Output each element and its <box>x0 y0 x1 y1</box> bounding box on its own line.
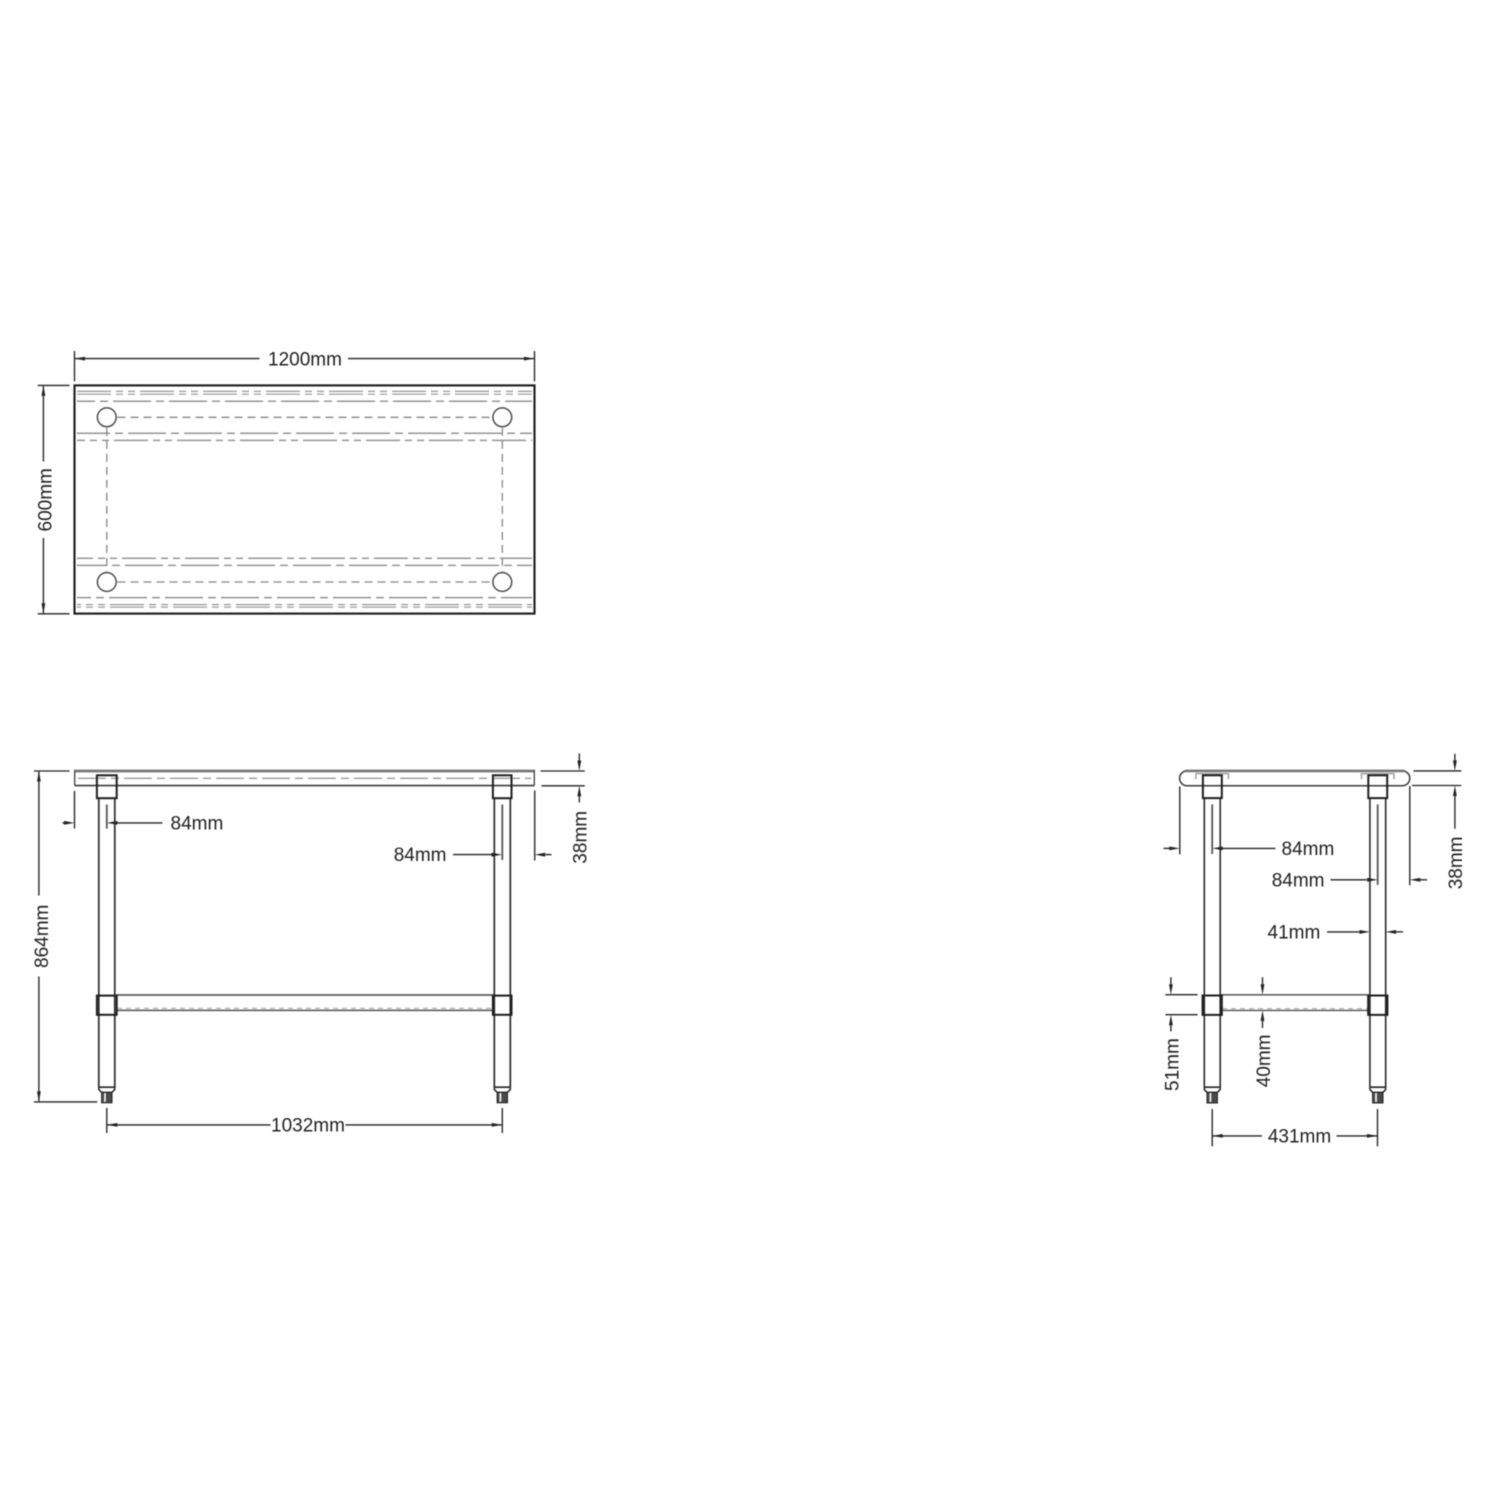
svg-text:1200mm: 1200mm <box>268 349 342 370</box>
svg-text:84mm: 84mm <box>394 845 447 866</box>
svg-text:84mm: 84mm <box>171 813 224 834</box>
svg-text:1032mm: 1032mm <box>271 1116 345 1137</box>
svg-text:600mm: 600mm <box>36 468 57 531</box>
svg-text:38mm: 38mm <box>570 811 591 864</box>
svg-text:40mm: 40mm <box>1254 1035 1275 1088</box>
svg-text:84mm: 84mm <box>1282 839 1335 860</box>
svg-text:864mm: 864mm <box>32 905 53 968</box>
svg-text:41mm: 41mm <box>1268 922 1321 943</box>
svg-text:38mm: 38mm <box>1446 837 1467 890</box>
svg-text:51mm: 51mm <box>1163 1038 1184 1091</box>
svg-text:84mm: 84mm <box>1272 870 1325 891</box>
svg-text:431mm: 431mm <box>1268 1126 1331 1147</box>
